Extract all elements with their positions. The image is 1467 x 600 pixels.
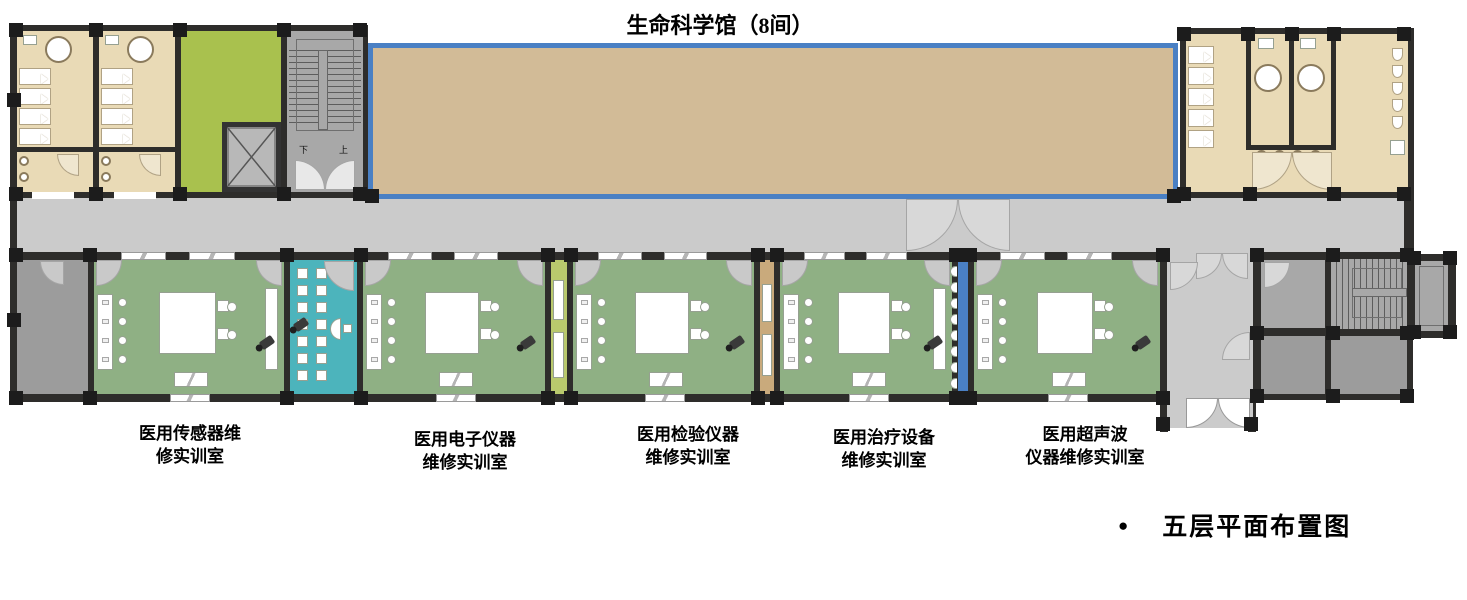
chair-icon <box>480 300 492 312</box>
label-line: 医用传感器维 <box>80 423 300 446</box>
column <box>1156 248 1170 262</box>
stool-icon <box>597 298 606 307</box>
bench-fixture <box>371 357 378 362</box>
stairs-right-rail <box>1352 288 1407 297</box>
student-chair <box>297 370 308 381</box>
wash-basin <box>1390 140 1405 155</box>
stairs-up-label: 上 <box>339 143 348 156</box>
restroom-left-2 <box>99 31 175 147</box>
student-chair <box>316 302 327 313</box>
equipment-icon <box>729 335 746 350</box>
round-sink-icon <box>127 36 154 63</box>
column <box>770 391 784 405</box>
workbench <box>977 294 993 370</box>
restroom-left-1-ante <box>17 152 93 192</box>
student-chair <box>297 302 308 313</box>
column <box>280 248 294 262</box>
stool-icon <box>387 355 396 364</box>
label-line: 维修实训室 <box>774 450 994 473</box>
workbench <box>576 294 592 370</box>
stool-icon <box>998 336 1007 345</box>
side-counter <box>933 288 946 370</box>
round-sink-icon <box>45 36 72 63</box>
student-chair <box>297 268 308 279</box>
column <box>541 391 555 405</box>
column <box>1167 189 1181 203</box>
toilet-stall <box>19 128 51 145</box>
divider-counter <box>553 280 564 320</box>
door-gap <box>114 192 156 199</box>
urinal-icon <box>1392 99 1403 112</box>
divider-room-blue <box>958 260 968 394</box>
column <box>1244 417 1258 431</box>
door-arc <box>365 260 391 286</box>
window <box>189 252 235 260</box>
chair-icon <box>950 362 957 373</box>
side-table <box>649 372 683 387</box>
column <box>1327 187 1341 201</box>
stool-icon <box>998 298 1007 307</box>
workbench <box>366 294 382 370</box>
toilet-stall <box>19 108 51 125</box>
label-line: 修实训室 <box>80 446 300 469</box>
window <box>804 252 845 260</box>
column <box>1326 248 1340 262</box>
elevator-x-icon <box>227 127 276 187</box>
toilet-icon <box>1258 38 1274 49</box>
student-chair <box>297 285 308 296</box>
divider-counter <box>762 284 772 322</box>
window <box>170 394 210 402</box>
restroom-right-partition <box>1331 34 1336 149</box>
chair-icon <box>217 300 229 312</box>
column <box>7 93 21 107</box>
window <box>645 394 685 402</box>
chair-icon <box>950 314 957 325</box>
bench-fixture <box>982 338 989 343</box>
column <box>1250 326 1264 340</box>
column <box>949 248 963 262</box>
restroom-right-partition <box>1289 34 1294 145</box>
stool-icon <box>998 355 1007 364</box>
chair-icon <box>480 328 492 340</box>
door-gap <box>32 192 74 199</box>
column <box>1443 251 1457 265</box>
round-sink-icon <box>1297 64 1325 92</box>
door-arc <box>976 260 1002 286</box>
bench-fixture <box>982 319 989 324</box>
chair-icon <box>950 266 957 277</box>
column <box>1177 27 1191 41</box>
label-line: 医用治疗设备 <box>774 427 994 450</box>
label-line: 维修实训室 <box>578 447 798 470</box>
equipment-icon <box>1135 335 1152 350</box>
toilet-stall <box>101 68 133 85</box>
stool-icon <box>118 298 127 307</box>
work-table <box>838 292 890 354</box>
label-classroom-sensor: 医用传感器维 修实训室 <box>80 423 300 469</box>
column <box>173 23 187 37</box>
door-arc <box>1132 260 1158 286</box>
classroom-testing-repair <box>573 260 754 394</box>
bench-fixture <box>788 357 795 362</box>
toilet-stall <box>1188 109 1214 127</box>
window <box>454 252 498 260</box>
caption-text: 五层平面布置图 <box>1162 507 1351 543</box>
student-chair <box>297 353 308 364</box>
column <box>353 23 367 37</box>
stool-icon <box>387 298 396 307</box>
bench-fixture <box>581 319 588 324</box>
chair-icon <box>950 282 957 293</box>
life-science-hall <box>368 43 1178 199</box>
side-table <box>852 372 886 387</box>
side-counter <box>265 288 278 370</box>
divider-counter <box>762 334 772 376</box>
column <box>9 187 23 201</box>
stool-icon <box>597 336 606 345</box>
bench-fixture <box>982 357 989 362</box>
divider-room-tan <box>760 260 774 394</box>
workbench <box>97 294 113 370</box>
work-table <box>425 292 480 354</box>
stool-icon <box>118 317 127 326</box>
door-arc <box>517 260 543 286</box>
toilet-stall <box>19 88 51 105</box>
bench-fixture <box>788 300 795 305</box>
restroom-right-partition <box>1246 145 1336 150</box>
door-arc <box>726 260 752 286</box>
column <box>173 187 187 201</box>
window <box>664 252 707 260</box>
restroom-left-1 <box>17 31 93 147</box>
toilet-stall <box>1188 130 1214 148</box>
toilet-stall <box>1188 88 1214 106</box>
bench-fixture <box>102 357 109 362</box>
stairs-down-label: 下 <box>299 143 308 156</box>
column <box>963 391 977 405</box>
column <box>354 248 368 262</box>
column <box>1285 27 1299 41</box>
stairs-left-outline <box>296 39 354 131</box>
chair-icon <box>1094 300 1106 312</box>
column <box>1407 251 1421 265</box>
round-sink-icon <box>1254 64 1282 92</box>
label-line: 仪器维修实训室 <box>975 447 1195 470</box>
student-chair <box>316 319 327 330</box>
column <box>564 248 578 262</box>
column <box>751 248 765 262</box>
column <box>83 248 97 262</box>
window <box>849 394 889 402</box>
door-arc <box>782 260 808 286</box>
door-arc <box>924 260 950 286</box>
door-arc <box>256 260 282 286</box>
column <box>1443 325 1457 339</box>
toilet-icon <box>1300 38 1316 49</box>
chair-icon <box>891 328 903 340</box>
column <box>1407 325 1421 339</box>
label-classroom-testing: 医用检验仪器 维修实训室 <box>578 424 798 470</box>
floor-plan: 生命科学馆（8间） 下 上 <box>0 0 1467 600</box>
chair-icon <box>950 378 957 389</box>
column <box>89 23 103 37</box>
student-chair <box>316 370 327 381</box>
bench-fixture <box>371 300 378 305</box>
work-table <box>1037 292 1093 354</box>
chair-icon <box>950 330 957 341</box>
label-line: 维修实训室 <box>355 452 575 475</box>
stool-icon <box>998 317 1007 326</box>
column <box>89 187 103 201</box>
bench-fixture <box>581 357 588 362</box>
column <box>1326 326 1340 340</box>
column <box>277 187 291 201</box>
stool-icon <box>804 355 813 364</box>
classroom-sensor-repair <box>94 260 284 394</box>
classroom-treatment-repair <box>780 260 952 394</box>
podium-desk <box>343 324 352 333</box>
equipment-icon <box>520 335 537 350</box>
column <box>83 391 97 405</box>
stool-icon <box>804 298 813 307</box>
chair-icon <box>690 300 702 312</box>
label-classroom-electronic: 医用电子仪器 维修实训室 <box>355 429 575 475</box>
column <box>564 391 578 405</box>
column <box>1241 27 1255 41</box>
window <box>866 252 907 260</box>
column <box>541 248 555 262</box>
hand-sink-icon <box>19 172 29 182</box>
column <box>1156 391 1170 405</box>
hand-sink-icon <box>19 156 29 166</box>
column <box>1243 187 1257 201</box>
label-line: 医用检验仪器 <box>578 424 798 447</box>
stair-landing-outline <box>1419 266 1444 326</box>
bench-fixture <box>581 338 588 343</box>
stool-icon <box>387 336 396 345</box>
chair-icon <box>1094 328 1106 340</box>
wall-corridor-right-end <box>1404 196 1414 254</box>
stool-icon <box>118 336 127 345</box>
chair-icon <box>950 298 957 309</box>
toilet-stall <box>1188 67 1214 85</box>
student-chair <box>316 353 327 364</box>
column <box>7 313 21 327</box>
stool-icon <box>597 317 606 326</box>
column <box>1326 389 1340 403</box>
bench-fixture <box>788 319 795 324</box>
label-classroom-ultrasound: 医用超声波 仪器维修实训室 <box>975 424 1195 470</box>
window <box>598 252 641 260</box>
door-arc <box>575 260 601 286</box>
toilet-stall <box>101 88 133 105</box>
chair-icon <box>690 328 702 340</box>
door-arc <box>57 154 79 176</box>
toilet-stall <box>101 128 133 145</box>
student-chair <box>316 336 327 347</box>
column <box>949 391 963 405</box>
urinal-icon <box>1392 65 1403 78</box>
bench-fixture <box>371 338 378 343</box>
window <box>1000 252 1045 260</box>
column <box>770 248 784 262</box>
bench-fixture <box>102 300 109 305</box>
work-table <box>635 292 689 354</box>
stool-icon <box>387 317 396 326</box>
divider-room-olive <box>551 260 567 394</box>
stool-icon <box>118 355 127 364</box>
column <box>280 391 294 405</box>
toilet-stall <box>101 108 133 125</box>
chair-icon <box>217 328 229 340</box>
restroom-right-partition <box>1246 34 1251 149</box>
classroom-ultrasound-repair <box>974 260 1160 394</box>
column <box>1400 389 1414 403</box>
bench-fixture <box>788 338 795 343</box>
toilet-icon <box>105 35 119 45</box>
side-table <box>174 372 208 387</box>
chair-icon <box>891 300 903 312</box>
window <box>121 252 167 260</box>
hand-sink-icon <box>101 156 111 166</box>
window <box>1048 394 1088 402</box>
column <box>1250 389 1264 403</box>
toilet-stall <box>19 68 51 85</box>
restroom-left-2-ante <box>99 152 175 192</box>
label-classroom-treatment: 医用治疗设备 维修实训室 <box>774 427 994 473</box>
column <box>1397 27 1411 41</box>
column <box>354 391 368 405</box>
student-chair <box>297 336 308 347</box>
column <box>9 391 23 405</box>
column <box>1327 27 1341 41</box>
label-line: 医用超声波 <box>975 424 1195 447</box>
stool-icon <box>804 317 813 326</box>
column <box>9 248 23 262</box>
room-gray-right-1 <box>1261 336 1325 394</box>
figure-caption: ● 五层平面布置图 <box>1118 507 1351 543</box>
window <box>388 252 432 260</box>
column <box>365 189 379 203</box>
stool-icon <box>597 355 606 364</box>
urinal-icon <box>1392 48 1403 61</box>
side-table <box>439 372 473 387</box>
column <box>963 248 977 262</box>
label-line: 医用电子仪器 <box>355 429 575 452</box>
work-table <box>159 292 216 354</box>
column <box>9 23 23 37</box>
stool-icon <box>804 336 813 345</box>
window <box>436 394 476 402</box>
column <box>1397 187 1411 201</box>
window <box>1067 252 1112 260</box>
door-arc <box>139 154 161 176</box>
hall-title: 生命科学馆（8间） <box>560 8 880 40</box>
bench-fixture <box>102 319 109 324</box>
bench-fixture <box>982 300 989 305</box>
urinal-icon <box>1392 116 1403 129</box>
column <box>751 391 765 405</box>
podium-icon <box>330 318 341 340</box>
room-gray-right-2 <box>1331 336 1407 394</box>
toilet-stall <box>1188 46 1214 64</box>
bench-fixture <box>102 338 109 343</box>
workbench <box>783 294 799 370</box>
hand-sink-icon <box>101 172 111 182</box>
chair-icon <box>950 346 957 357</box>
bench-fixture <box>581 300 588 305</box>
toilet-icon <box>23 35 37 45</box>
urinal-icon <box>1392 82 1403 95</box>
bullet-icon: ● <box>1118 517 1128 534</box>
divider-counter <box>553 332 564 378</box>
student-chair <box>316 285 327 296</box>
bench-fixture <box>371 319 378 324</box>
column <box>1250 248 1264 262</box>
classroom-electronic-repair <box>363 260 545 394</box>
elevator <box>222 122 281 192</box>
side-table <box>1052 372 1086 387</box>
column <box>277 23 291 37</box>
corridor <box>17 198 1404 252</box>
door-arc <box>96 260 122 286</box>
